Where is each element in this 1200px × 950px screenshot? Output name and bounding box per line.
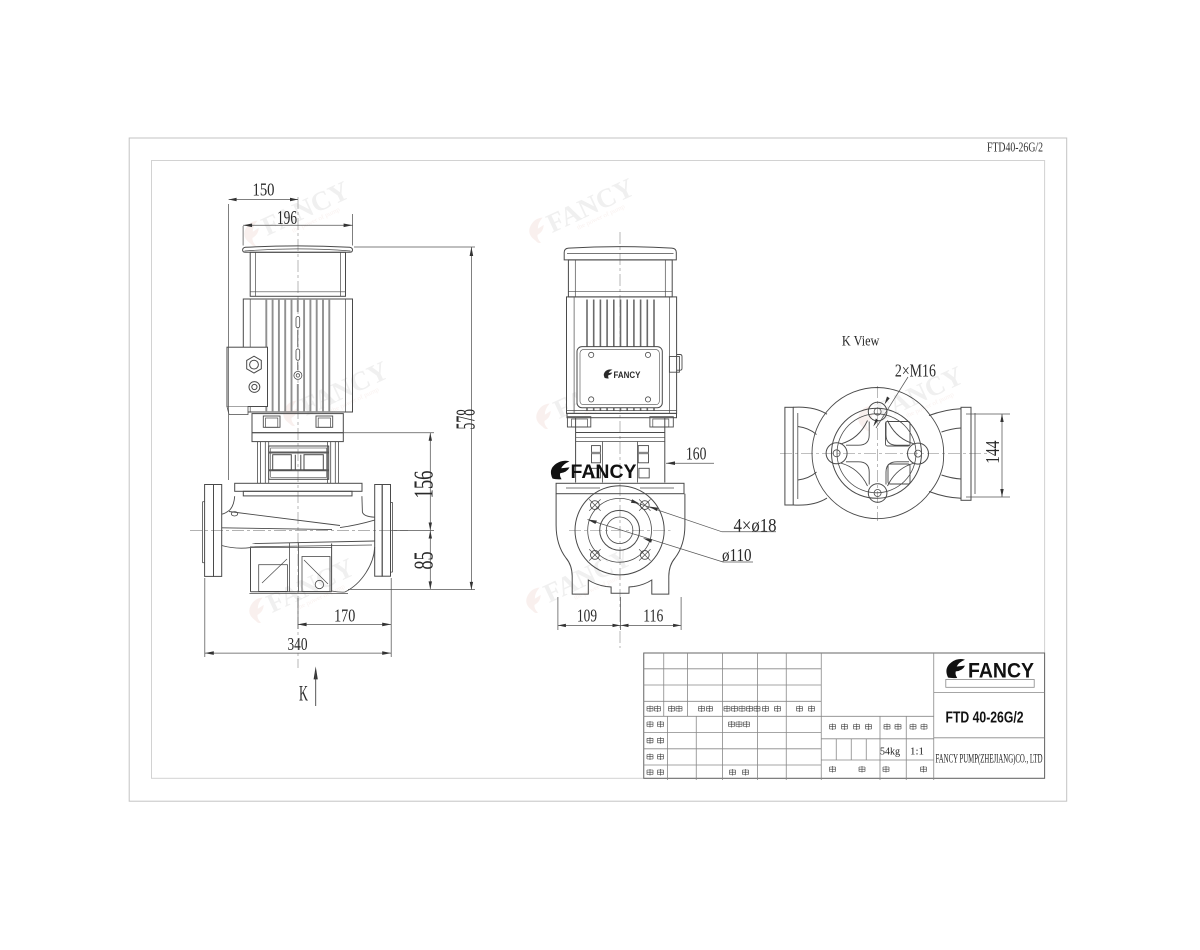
svg-text:FANCY PUMP(ZHEJIANG)CO., LTD: FANCY PUMP(ZHEJIANG)CO., LTD (936, 752, 1043, 766)
svg-text:144: 144 (982, 441, 1004, 464)
svg-text:196: 196 (277, 208, 297, 229)
svg-text:K View: K View (842, 333, 880, 349)
svg-text:2×M16: 2×M16 (895, 360, 936, 380)
svg-text:FTD40-26G/2: FTD40-26G/2 (987, 141, 1043, 156)
svg-text:116: 116 (643, 606, 663, 626)
svg-text:156: 156 (408, 471, 438, 499)
svg-text:578: 578 (450, 409, 480, 430)
svg-text:FANCY: FANCY (571, 461, 637, 483)
svg-text:FTD 40-26G/2: FTD 40-26G/2 (946, 710, 1024, 727)
svg-text:109: 109 (577, 606, 597, 626)
svg-text:4×ø18: 4×ø18 (734, 516, 777, 537)
svg-text:340: 340 (288, 634, 308, 654)
svg-text:FANCY: FANCY (614, 370, 642, 381)
svg-text:170: 170 (334, 606, 355, 626)
svg-text:ø110: ø110 (722, 545, 752, 565)
svg-text:150: 150 (253, 180, 275, 200)
svg-text:FANCY: FANCY (968, 660, 1034, 683)
svg-text:54kg: 54kg (880, 747, 900, 758)
svg-text:1:1: 1:1 (910, 747, 924, 758)
svg-text:K: K (299, 680, 308, 705)
svg-text:160: 160 (686, 444, 707, 464)
svg-text:85: 85 (408, 551, 438, 569)
